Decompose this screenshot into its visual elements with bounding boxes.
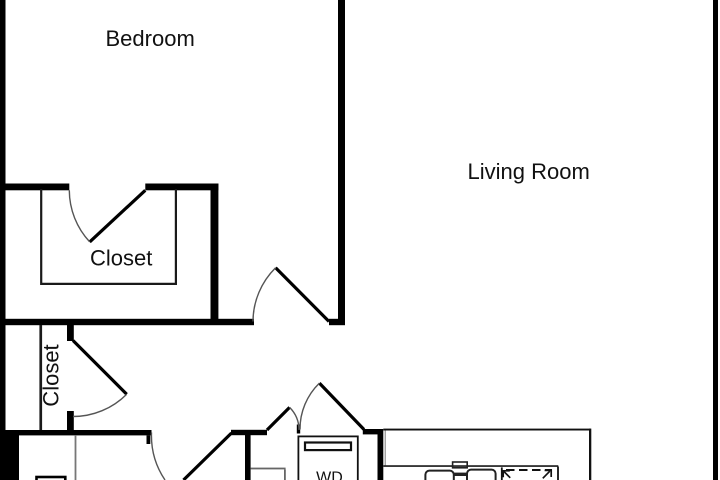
svg-text:Closet: Closet	[90, 246, 152, 271]
svg-text:WD: WD	[316, 470, 343, 480]
svg-text:Living Room: Living Room	[468, 159, 590, 184]
svg-text:Closet: Closet	[39, 344, 64, 406]
svg-text:Bedroom: Bedroom	[106, 26, 195, 51]
